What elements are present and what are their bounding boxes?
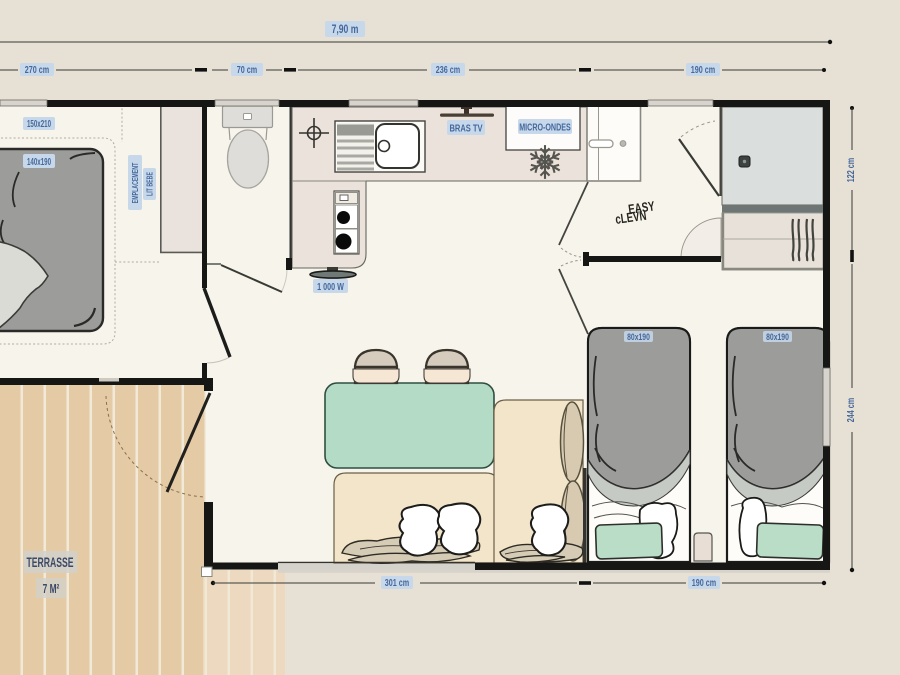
svg-text:190 cm: 190 cm	[691, 64, 716, 75]
svg-text:7 M²: 7 M²	[43, 582, 60, 596]
svg-text:150x210: 150x210	[27, 117, 51, 129]
svg-text:301 cm: 301 cm	[385, 577, 410, 588]
svg-text:80x190: 80x190	[766, 332, 789, 342]
svg-text:LIT BEBE: LIT BEBE	[146, 172, 154, 196]
svg-text:EMPLACEMENT: EMPLACEMENT	[132, 162, 140, 203]
svg-text:122 cm: 122 cm	[845, 158, 856, 183]
svg-text:TERRASSE: TERRASSE	[26, 556, 73, 570]
svg-text:70 cm: 70 cm	[237, 64, 258, 75]
svg-text:236 cm: 236 cm	[436, 64, 461, 75]
svg-text:190 cm: 190 cm	[692, 577, 717, 588]
svg-text:270 cm: 270 cm	[25, 64, 50, 75]
svg-text:140x190: 140x190	[27, 155, 51, 167]
svg-text:MICRO-ONDES: MICRO-ONDES	[519, 121, 571, 133]
svg-text:244 cm: 244 cm	[845, 398, 856, 423]
svg-text:7,90 m: 7,90 m	[332, 24, 359, 37]
svg-text:1 000 W: 1 000 W	[317, 281, 344, 292]
svg-text:80x190: 80x190	[627, 332, 650, 342]
svg-text:BRAS TV: BRAS TV	[449, 122, 483, 133]
